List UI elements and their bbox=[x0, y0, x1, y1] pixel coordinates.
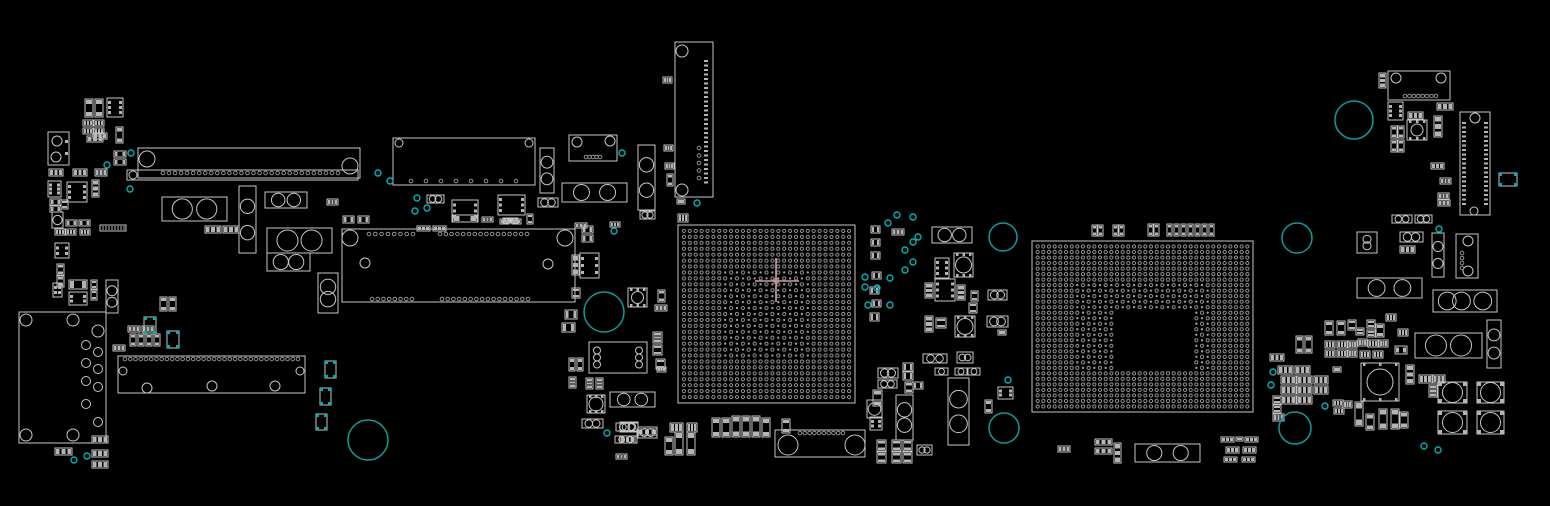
chip-3pad[interactable] bbox=[925, 283, 933, 298]
chip-2pad[interactable] bbox=[138, 334, 144, 346]
capacitor-component[interactable] bbox=[987, 316, 1008, 327]
capacitor-component[interactable] bbox=[239, 186, 256, 253]
chip-3pad[interactable] bbox=[1236, 437, 1243, 441]
test-point bbox=[127, 186, 133, 192]
highlighted-component[interactable] bbox=[167, 331, 179, 348]
chip-3pad[interactable] bbox=[1245, 437, 1258, 442]
test-point bbox=[604, 430, 610, 436]
chip-2pad[interactable] bbox=[95, 99, 103, 117]
soic-component[interactable] bbox=[935, 279, 955, 301]
chip-3pad[interactable] bbox=[1360, 351, 1370, 358]
fet-component[interactable] bbox=[1477, 382, 1504, 403]
chip-2pad[interactable] bbox=[1273, 405, 1281, 413]
cpu-bga[interactable] bbox=[678, 225, 855, 403]
chip-2pad[interactable] bbox=[114, 159, 126, 165]
chip-3pad[interactable] bbox=[1406, 365, 1414, 384]
chip-2pad[interactable] bbox=[752, 416, 760, 437]
soic-component[interactable] bbox=[1388, 102, 1403, 120]
chip-3pad[interactable] bbox=[1334, 408, 1344, 414]
chip-3pad[interactable] bbox=[327, 199, 338, 205]
chip-3pad[interactable] bbox=[1224, 457, 1237, 462]
capacitor-component[interactable] bbox=[948, 378, 969, 445]
chip-3pad[interactable] bbox=[1281, 376, 1296, 384]
resistor-array[interactable] bbox=[100, 225, 126, 231]
capacitor-component[interactable] bbox=[318, 273, 338, 313]
fet-component[interactable] bbox=[1438, 382, 1467, 403]
chip-3pad[interactable] bbox=[223, 226, 239, 233]
chip-2pad[interactable] bbox=[565, 310, 577, 319]
boardview-canvas[interactable] bbox=[0, 0, 1550, 506]
chip-3pad[interactable] bbox=[1226, 447, 1239, 453]
test-point bbox=[902, 267, 908, 273]
capacitor-component[interactable] bbox=[935, 368, 948, 375]
capacitor-component[interactable] bbox=[1433, 290, 1497, 312]
soic-component[interactable] bbox=[580, 253, 599, 278]
chip-3pad[interactable] bbox=[1373, 351, 1383, 358]
capacitor-component[interactable] bbox=[162, 197, 227, 221]
chip-2pad[interactable] bbox=[57, 276, 64, 287]
chip-2pad[interactable] bbox=[1167, 224, 1172, 236]
chip-3pad[interactable] bbox=[73, 169, 87, 176]
chip-3pad[interactable] bbox=[655, 305, 667, 311]
chip-2pad[interactable] bbox=[569, 358, 575, 371]
chip-3pad[interactable] bbox=[80, 229, 90, 235]
connector-component[interactable] bbox=[675, 42, 713, 197]
chip-3pad[interactable] bbox=[1058, 446, 1070, 452]
chip-3pad[interactable] bbox=[66, 229, 76, 235]
chip-3pad[interactable] bbox=[616, 454, 627, 459]
chip-2pad[interactable] bbox=[160, 297, 167, 311]
chip-2pad[interactable] bbox=[742, 416, 750, 437]
capacitor-component[interactable] bbox=[582, 419, 603, 428]
chip-3pad[interactable] bbox=[1325, 350, 1335, 357]
chip-2pad[interactable] bbox=[722, 418, 730, 437]
chip-2pad[interactable] bbox=[66, 220, 77, 226]
chip-3pad[interactable] bbox=[1437, 103, 1453, 110]
chip-3pad[interactable] bbox=[569, 377, 576, 388]
connector-component[interactable] bbox=[569, 135, 617, 161]
chip-3pad[interactable] bbox=[1343, 401, 1352, 408]
connector-component[interactable] bbox=[1388, 71, 1450, 100]
capacitor-component[interactable] bbox=[955, 368, 967, 375]
chip-3pad[interactable] bbox=[1333, 367, 1341, 372]
test-point bbox=[71, 457, 77, 463]
connector-component[interactable] bbox=[1460, 112, 1490, 215]
capacitor-component[interactable] bbox=[878, 368, 898, 378]
chip-3pad[interactable] bbox=[92, 436, 108, 443]
chip-3pad[interactable] bbox=[1114, 443, 1121, 463]
chip-2pad[interactable] bbox=[1391, 126, 1397, 138]
chip-2pad[interactable] bbox=[453, 215, 477, 222]
soic-component[interactable] bbox=[998, 387, 1013, 399]
capacitor-component[interactable] bbox=[878, 380, 897, 388]
chip-2pad[interactable] bbox=[903, 440, 912, 451]
chip-3pad[interactable] bbox=[677, 199, 685, 204]
chip-3pad[interactable] bbox=[610, 222, 620, 227]
capacitor-component[interactable] bbox=[265, 192, 307, 208]
chip-2pad[interactable] bbox=[877, 440, 886, 451]
connector-component[interactable] bbox=[19, 312, 106, 443]
chip-3pad[interactable] bbox=[1297, 396, 1312, 404]
chip-3pad[interactable] bbox=[1440, 178, 1451, 184]
test-point bbox=[1005, 377, 1011, 383]
capacitor-component[interactable] bbox=[640, 211, 655, 219]
chip-2pad[interactable] bbox=[712, 418, 720, 437]
chip-3pad[interactable] bbox=[586, 378, 593, 389]
connector-component[interactable] bbox=[1456, 234, 1478, 278]
chip-2pad[interactable] bbox=[903, 363, 913, 371]
chip-2pad[interactable] bbox=[872, 272, 881, 279]
capacitor-component[interactable] bbox=[917, 445, 932, 455]
chip-3pad[interactable] bbox=[1278, 366, 1293, 374]
chip-3pad[interactable] bbox=[1314, 376, 1328, 384]
capacitor-component[interactable] bbox=[538, 198, 558, 207]
chip-2pad[interactable] bbox=[343, 216, 354, 223]
chip-3pad[interactable] bbox=[83, 120, 93, 126]
chip-2pad[interactable] bbox=[1119, 225, 1124, 236]
chip-2pad[interactable] bbox=[1154, 224, 1159, 236]
chip-2pad[interactable] bbox=[116, 127, 123, 143]
chip-3pad[interactable] bbox=[1408, 112, 1423, 119]
chip-2pad[interactable] bbox=[114, 151, 126, 157]
fet-component[interactable] bbox=[1477, 411, 1504, 434]
chip-3pad[interactable] bbox=[1348, 350, 1357, 357]
test-point bbox=[424, 205, 430, 211]
test-point bbox=[1270, 369, 1276, 375]
capacitor-component[interactable] bbox=[1415, 333, 1482, 358]
chip-3pad[interactable] bbox=[663, 77, 672, 83]
chip-2pad[interactable] bbox=[1400, 412, 1408, 428]
chip-2pad[interactable] bbox=[892, 452, 901, 463]
connector-component[interactable] bbox=[118, 356, 305, 393]
capacitor-component[interactable] bbox=[1415, 215, 1432, 223]
chip-3pad[interactable] bbox=[1333, 400, 1343, 406]
chip-3pad[interactable] bbox=[92, 450, 108, 457]
connector-component[interactable] bbox=[775, 430, 865, 457]
chip-3pad[interactable] bbox=[1429, 385, 1437, 397]
chip-3pad[interactable] bbox=[925, 316, 933, 332]
chip-2pad[interactable] bbox=[871, 226, 880, 233]
capacitor-component[interactable] bbox=[562, 183, 627, 202]
chip-3pad[interactable] bbox=[653, 332, 662, 343]
chip-2pad[interactable] bbox=[1367, 320, 1375, 328]
chip-3pad[interactable] bbox=[1295, 366, 1310, 374]
soic-component[interactable] bbox=[55, 243, 69, 258]
chip-2pad[interactable] bbox=[1355, 402, 1363, 426]
chip-3pad[interactable] bbox=[1400, 246, 1415, 253]
qfn-component[interactable] bbox=[587, 395, 605, 413]
chip-2pad[interactable] bbox=[903, 452, 912, 463]
chip-3pad[interactable] bbox=[1325, 341, 1335, 348]
qfn-component[interactable] bbox=[955, 316, 975, 337]
chip-2pad[interactable] bbox=[871, 252, 880, 259]
capacitor-component[interactable] bbox=[1135, 444, 1200, 462]
chip-2pad[interactable] bbox=[1366, 414, 1374, 430]
soic-component[interactable] bbox=[67, 182, 87, 202]
chip-2pad[interactable] bbox=[1195, 224, 1200, 236]
capacitor-component[interactable] bbox=[106, 280, 118, 313]
test-point bbox=[910, 259, 916, 265]
qfn-component[interactable] bbox=[1407, 120, 1427, 140]
chip-2pad[interactable] bbox=[1148, 224, 1153, 236]
chip-2pad[interactable] bbox=[913, 382, 923, 389]
chip-2pad[interactable] bbox=[1356, 328, 1364, 335]
chip-2pad[interactable] bbox=[1181, 224, 1186, 236]
chip-2pad[interactable] bbox=[130, 334, 136, 346]
chip-2pad[interactable] bbox=[527, 214, 533, 224]
highlighted-component[interactable] bbox=[325, 361, 336, 378]
chip-3pad[interactable] bbox=[1337, 341, 1347, 348]
soic-component[interactable] bbox=[498, 195, 525, 215]
capacitor-component[interactable] bbox=[1357, 232, 1377, 253]
chip-3pad[interactable] bbox=[664, 145, 673, 151]
chip-2pad[interactable] bbox=[50, 206, 61, 212]
chip-3pad[interactable] bbox=[1419, 375, 1432, 383]
chip-2pad[interactable] bbox=[1337, 321, 1345, 335]
chip-3pad[interactable] bbox=[128, 326, 140, 332]
chip-2pad[interactable] bbox=[969, 303, 977, 313]
test-point bbox=[887, 302, 893, 308]
chip-2pad[interactable] bbox=[658, 290, 665, 302]
test-point bbox=[910, 239, 916, 245]
chip-3pad[interactable] bbox=[55, 448, 72, 455]
chip-2pad[interactable] bbox=[169, 297, 176, 311]
chip-3pad[interactable] bbox=[1281, 396, 1296, 404]
chip-3pad[interactable] bbox=[1243, 447, 1256, 453]
chip-2pad[interactable] bbox=[1391, 140, 1397, 152]
chip-3pad[interactable] bbox=[1337, 350, 1347, 357]
chip-3pad[interactable] bbox=[433, 226, 446, 231]
chip-2pad[interactable] bbox=[69, 280, 87, 289]
chip-3pad[interactable] bbox=[687, 423, 697, 432]
soic-component[interactable] bbox=[69, 292, 87, 305]
chip-3pad[interactable] bbox=[678, 214, 688, 222]
chip-3pad[interactable] bbox=[417, 226, 430, 231]
capacitor-component[interactable] bbox=[267, 253, 310, 271]
chip-3pad[interactable] bbox=[1297, 376, 1312, 384]
chip-2pad[interactable] bbox=[1092, 225, 1097, 236]
chip-2pad[interactable] bbox=[656, 359, 665, 369]
chip-3pad[interactable] bbox=[1438, 193, 1449, 199]
chip-3pad[interactable] bbox=[572, 255, 579, 275]
chip-2pad[interactable] bbox=[1098, 225, 1103, 236]
qfn-component[interactable] bbox=[954, 253, 973, 277]
chip-2pad[interactable] bbox=[985, 400, 992, 413]
test-point bbox=[865, 302, 871, 308]
connector-component[interactable] bbox=[138, 148, 360, 178]
chip-3pad[interactable] bbox=[1434, 116, 1442, 137]
chip-3pad[interactable] bbox=[1386, 314, 1396, 321]
chip-3pad[interactable] bbox=[49, 169, 63, 176]
chip-3pad[interactable] bbox=[957, 285, 965, 300]
chip-3pad[interactable] bbox=[665, 163, 674, 169]
chip-2pad[interactable] bbox=[667, 174, 673, 186]
pch-bga[interactable] bbox=[1032, 241, 1253, 412]
test-point bbox=[894, 212, 900, 218]
chip-3pad[interactable] bbox=[94, 120, 104, 126]
chip-2pad[interactable] bbox=[653, 345, 662, 355]
chip-2pad[interactable] bbox=[782, 419, 790, 433]
soic-component[interactable] bbox=[935, 258, 949, 278]
chip-2pad[interactable] bbox=[1305, 336, 1312, 353]
chip-2pad[interactable] bbox=[871, 239, 880, 246]
capacitor-component[interactable] bbox=[52, 212, 63, 228]
chip-3pad[interactable] bbox=[92, 461, 108, 468]
chip-3pad[interactable] bbox=[1242, 457, 1255, 462]
chip-3pad[interactable] bbox=[1270, 354, 1284, 361]
ic-component[interactable] bbox=[589, 342, 647, 373]
chip-2pad[interactable] bbox=[146, 334, 152, 346]
chip-3pad[interactable] bbox=[92, 180, 99, 197]
test-point bbox=[862, 274, 868, 280]
qfn-component[interactable] bbox=[628, 288, 647, 307]
chip-2pad[interactable] bbox=[1174, 224, 1179, 236]
chip-2pad[interactable] bbox=[50, 199, 61, 205]
chip-2pad[interactable] bbox=[1325, 321, 1333, 335]
chip-2pad[interactable] bbox=[1398, 126, 1404, 138]
test-point bbox=[902, 247, 908, 253]
soic-component[interactable] bbox=[107, 98, 123, 117]
chip-3pad[interactable] bbox=[1379, 73, 1386, 88]
mounting-hole bbox=[1335, 101, 1373, 139]
test-point bbox=[1322, 403, 1328, 409]
capacitor-component[interactable] bbox=[638, 145, 655, 210]
qfn-component[interactable] bbox=[1361, 363, 1399, 401]
pcb-board-layer[interactable] bbox=[0, 0, 1550, 506]
test-point bbox=[84, 453, 90, 459]
soic-component[interactable] bbox=[1395, 346, 1407, 354]
mounting-hole bbox=[1282, 223, 1312, 253]
chip-2pad[interactable] bbox=[905, 382, 913, 393]
chip-2pad[interactable] bbox=[1376, 324, 1384, 337]
chip-3pad[interactable] bbox=[113, 345, 125, 351]
mounting-hole bbox=[1279, 412, 1311, 444]
chip-2pad[interactable] bbox=[1273, 396, 1281, 404]
chip-3pad[interactable] bbox=[1348, 341, 1357, 348]
chip-2pad[interactable] bbox=[577, 358, 583, 371]
chip-3pad[interactable] bbox=[1095, 448, 1112, 454]
chip-2pad[interactable] bbox=[872, 300, 881, 307]
chip-3pad[interactable] bbox=[1438, 200, 1450, 206]
soic-component[interactable] bbox=[48, 181, 61, 197]
chip-3pad[interactable] bbox=[1379, 340, 1388, 347]
chip-3pad[interactable] bbox=[55, 229, 65, 235]
soic-component[interactable] bbox=[870, 417, 882, 430]
chip-2pad[interactable] bbox=[1202, 224, 1207, 236]
chip-2pad[interactable] bbox=[1391, 409, 1399, 429]
test-point bbox=[862, 284, 868, 290]
chip-3pad[interactable] bbox=[1297, 386, 1312, 394]
capacitor-component[interactable] bbox=[1400, 232, 1423, 242]
chip-2pad[interactable] bbox=[79, 220, 90, 226]
chip-2pad[interactable] bbox=[1367, 330, 1375, 337]
chip-3pad[interactable] bbox=[1314, 386, 1328, 394]
chip-2pad[interactable] bbox=[562, 323, 575, 332]
chip-2pad[interactable] bbox=[870, 313, 879, 321]
chip-2pad[interactable] bbox=[877, 452, 886, 463]
capacitor-component[interactable] bbox=[267, 228, 332, 253]
chip-3pad[interactable] bbox=[83, 128, 93, 134]
highlighted-component[interactable] bbox=[316, 414, 327, 430]
capacitor-component[interactable] bbox=[968, 368, 980, 375]
test-point bbox=[128, 150, 134, 156]
chip-2pad[interactable] bbox=[572, 288, 580, 298]
capacitor-component[interactable] bbox=[1487, 320, 1501, 368]
chip-2pad[interactable] bbox=[85, 99, 93, 117]
chip-2pad[interactable] bbox=[57, 264, 64, 275]
chip-2pad[interactable] bbox=[675, 432, 683, 455]
capacitor-component[interactable] bbox=[610, 392, 655, 407]
chip-2pad[interactable] bbox=[1348, 320, 1356, 330]
fet-component[interactable] bbox=[1438, 411, 1467, 434]
chip-2pad[interactable] bbox=[154, 334, 160, 346]
chip-2pad[interactable] bbox=[892, 440, 901, 451]
chip-2pad[interactable] bbox=[732, 416, 740, 437]
ic-component[interactable] bbox=[48, 132, 69, 165]
chip-3pad[interactable] bbox=[998, 330, 1006, 335]
chip-2pad[interactable] bbox=[971, 291, 978, 301]
test-point bbox=[915, 234, 921, 240]
chip-3pad[interactable] bbox=[1221, 437, 1234, 442]
chip-3pad[interactable] bbox=[1368, 340, 1378, 347]
capacitor-component[interactable] bbox=[957, 352, 973, 363]
chip-2pad[interactable] bbox=[903, 372, 913, 380]
chip-2pad[interactable] bbox=[1398, 140, 1404, 152]
highlighted-component[interactable] bbox=[320, 388, 331, 405]
chip-2pad[interactable] bbox=[1188, 224, 1193, 236]
capacitor-component[interactable] bbox=[1357, 278, 1422, 298]
chip-3pad[interactable] bbox=[670, 423, 683, 432]
chip-2pad[interactable] bbox=[1296, 336, 1303, 353]
chip-3pad[interactable] bbox=[1095, 439, 1112, 445]
capacitor-component[interactable] bbox=[1432, 233, 1444, 277]
chip-2pad[interactable] bbox=[582, 235, 593, 242]
capacitor-component[interactable] bbox=[932, 227, 972, 243]
capacitor-component[interactable] bbox=[988, 290, 1007, 300]
chip-3pad[interactable] bbox=[205, 226, 221, 233]
chip-3pad[interactable] bbox=[95, 169, 107, 176]
chip-2pad[interactable] bbox=[1209, 224, 1214, 236]
mounting-hole bbox=[989, 413, 1019, 443]
capacitor-component[interactable] bbox=[540, 148, 554, 193]
chip-2pad[interactable] bbox=[687, 432, 695, 455]
chip-2pad[interactable] bbox=[1379, 409, 1387, 429]
capacitor-component[interactable] bbox=[1392, 215, 1412, 223]
capacitor-component[interactable] bbox=[427, 195, 444, 203]
chip-3pad[interactable] bbox=[1398, 329, 1408, 336]
chip-3pad[interactable] bbox=[1281, 386, 1296, 394]
capacitor-component[interactable] bbox=[923, 354, 947, 363]
chip-3pad[interactable] bbox=[596, 378, 603, 389]
capacitor-component[interactable] bbox=[896, 395, 913, 440]
connector-component[interactable] bbox=[393, 138, 535, 185]
chip-2pad[interactable] bbox=[1113, 225, 1118, 236]
chip-3pad[interactable] bbox=[892, 229, 904, 235]
chip-3pad[interactable] bbox=[1358, 339, 1367, 346]
chip-2pad[interactable] bbox=[936, 318, 946, 328]
chip-2pad[interactable] bbox=[762, 418, 770, 437]
connector-component[interactable] bbox=[342, 229, 575, 302]
test-point bbox=[375, 170, 381, 176]
test-point bbox=[1435, 447, 1441, 453]
chip-2pad[interactable] bbox=[358, 216, 369, 223]
highlighted-component[interactable] bbox=[1499, 173, 1517, 186]
chip-3pad[interactable] bbox=[1431, 163, 1444, 169]
chip-3pad[interactable] bbox=[482, 217, 493, 222]
chip-2pad[interactable] bbox=[91, 290, 97, 300]
chip-2pad[interactable] bbox=[665, 437, 673, 455]
chip-2pad[interactable] bbox=[91, 280, 97, 289]
